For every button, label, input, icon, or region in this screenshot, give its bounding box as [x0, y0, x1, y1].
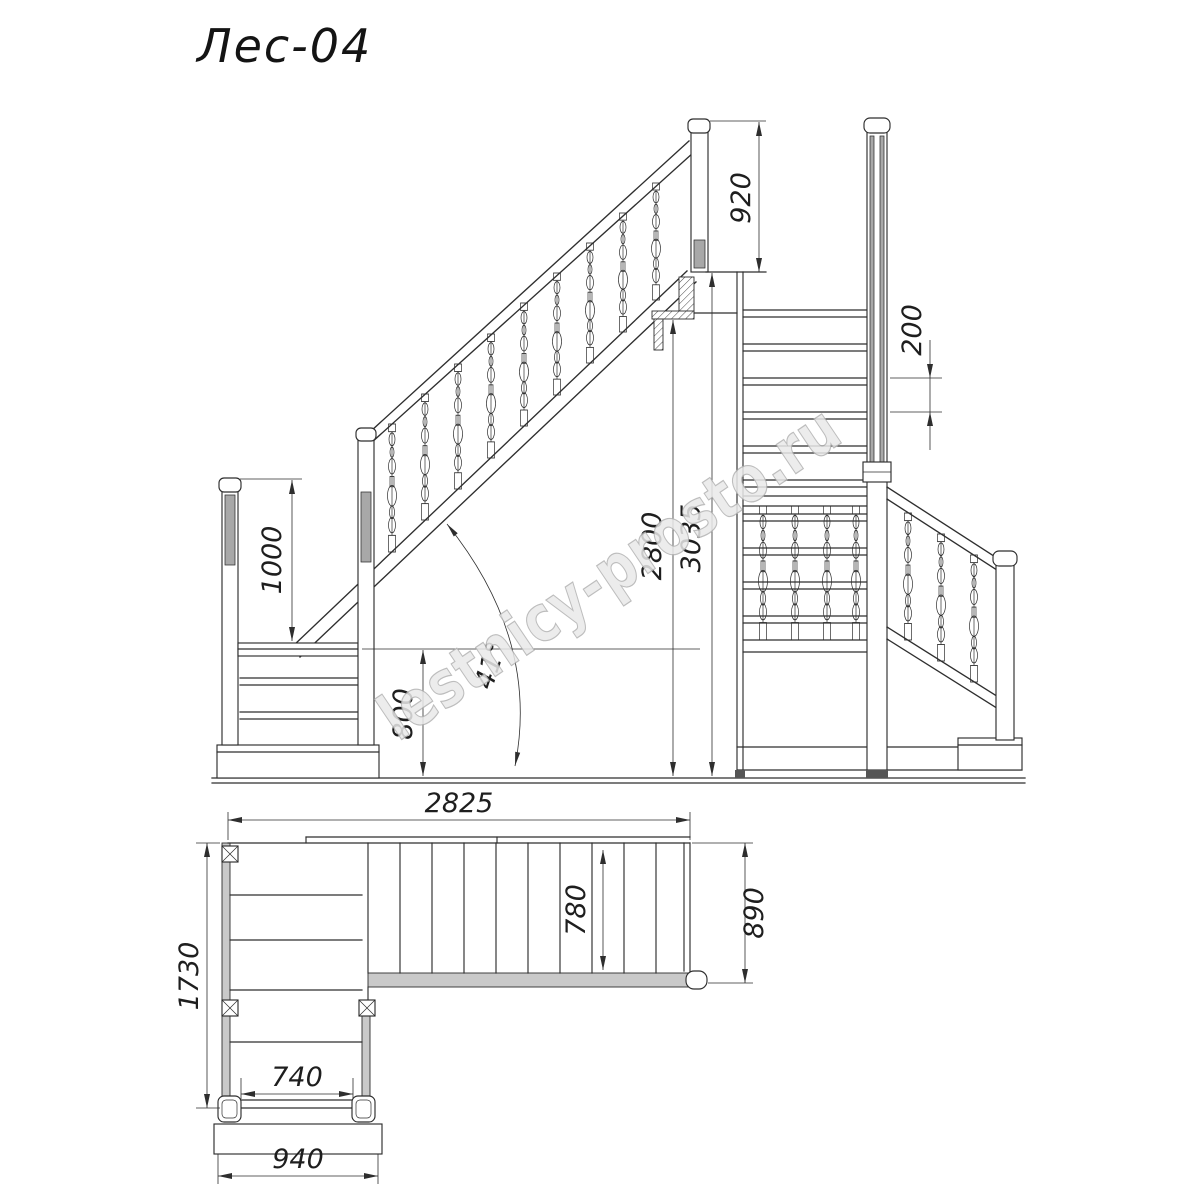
technical-drawing: 1000 800 920 2800 — [0, 0, 1200, 1200]
dim-text-890: 890 — [739, 887, 770, 939]
dim-text-780: 780 — [561, 884, 592, 936]
dim-text-1000: 1000 — [257, 526, 288, 595]
dim-text-2825: 2825 — [425, 788, 494, 819]
top-newel-post — [688, 119, 710, 272]
dim-text-200: 200 — [897, 304, 928, 356]
landing-steps — [238, 643, 358, 719]
foot-pad — [866, 770, 888, 778]
central-post-front — [863, 118, 891, 770]
dim-text-740: 740 — [271, 1062, 323, 1093]
dim-landing-rail-height: 1000 — [240, 479, 302, 641]
foot-pad — [735, 770, 745, 778]
dim-inner-width: 740 — [241, 1062, 353, 1099]
handrail — [371, 141, 689, 431]
lower-flight-railing-front — [887, 487, 1003, 712]
landing-plinth — [217, 745, 379, 778]
drawing-title: Лес-04 — [195, 19, 372, 73]
dim-text-940: 940 — [272, 1144, 324, 1175]
flight-balusters — [388, 183, 661, 552]
dim-post-height: 920 — [708, 121, 766, 272]
plan-flight-rail-band — [368, 973, 690, 987]
dim-total-length: 2825 — [228, 788, 690, 840]
right-newel-post-front — [958, 551, 1022, 770]
dim-step-rise: 200 — [890, 304, 942, 450]
plan-left-rail-band — [222, 843, 230, 1108]
dim-text-920: 920 — [726, 172, 757, 224]
dim-text-1730: 1730 — [174, 942, 205, 1011]
plan-view: 2825 890 780 1730 — [174, 788, 770, 1184]
left-newel-post — [219, 478, 241, 745]
upper-floor-section — [652, 272, 766, 350]
dim-flight-width: 890 — [692, 843, 770, 983]
plan-rail-end-cap — [686, 971, 707, 989]
watermark-text: lestnicy-prosto.ru — [366, 392, 855, 755]
dim-wing-length: 1730 — [174, 843, 220, 1108]
plan-flight-treads — [368, 843, 656, 973]
dim-tread-width: 780 — [561, 850, 606, 970]
landing-railing-front — [743, 496, 868, 652]
plan-wing-rail-band — [362, 1016, 370, 1108]
drawing-sheet: 1000 800 920 2800 — [0, 0, 1200, 1200]
side-elevation-view: 1000 800 920 2800 — [212, 119, 1025, 783]
